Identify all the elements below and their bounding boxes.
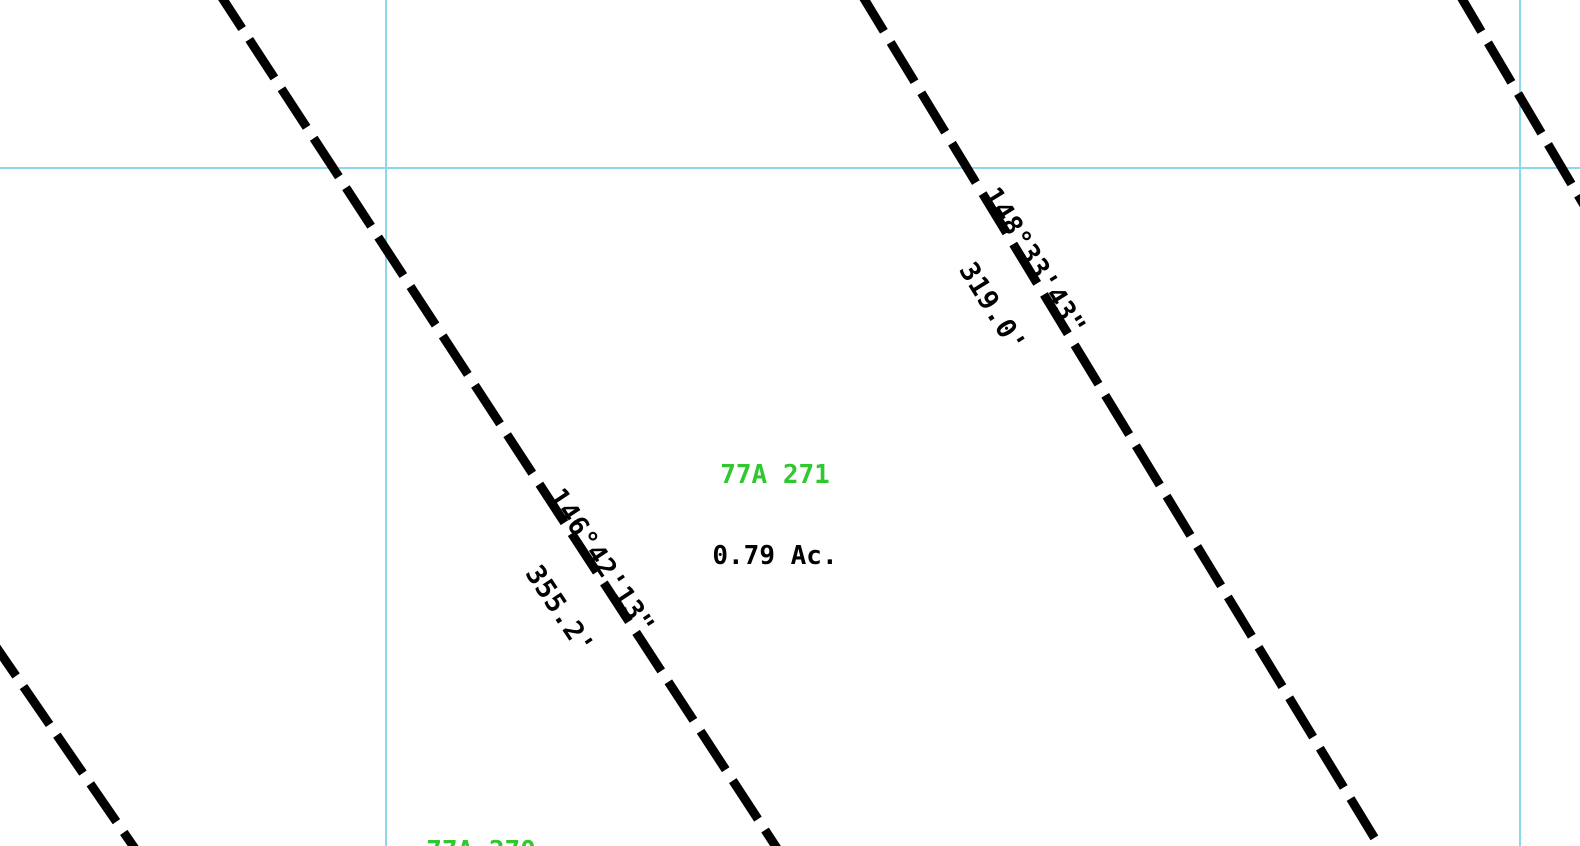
parcel-id: 77A 271: [690, 462, 860, 489]
parcel-id: 77A 270: [396, 838, 566, 846]
parcel-label[interactable]: 77A 270 0.76 Ac.: [396, 784, 566, 846]
map-viewport[interactable]: 148°33'43" 319.0' 146°42'13" 355.2' 77A …: [0, 0, 1580, 846]
boundary-southwest-parcel-boundary-line[interactable]: [0, 638, 140, 846]
parcel-label[interactable]: 77A 271 0.79 Ac.: [690, 408, 860, 624]
parcel-area: 0.79 Ac.: [690, 543, 860, 570]
boundary-center-parcel-boundary-line[interactable]: [860, 0, 1383, 846]
